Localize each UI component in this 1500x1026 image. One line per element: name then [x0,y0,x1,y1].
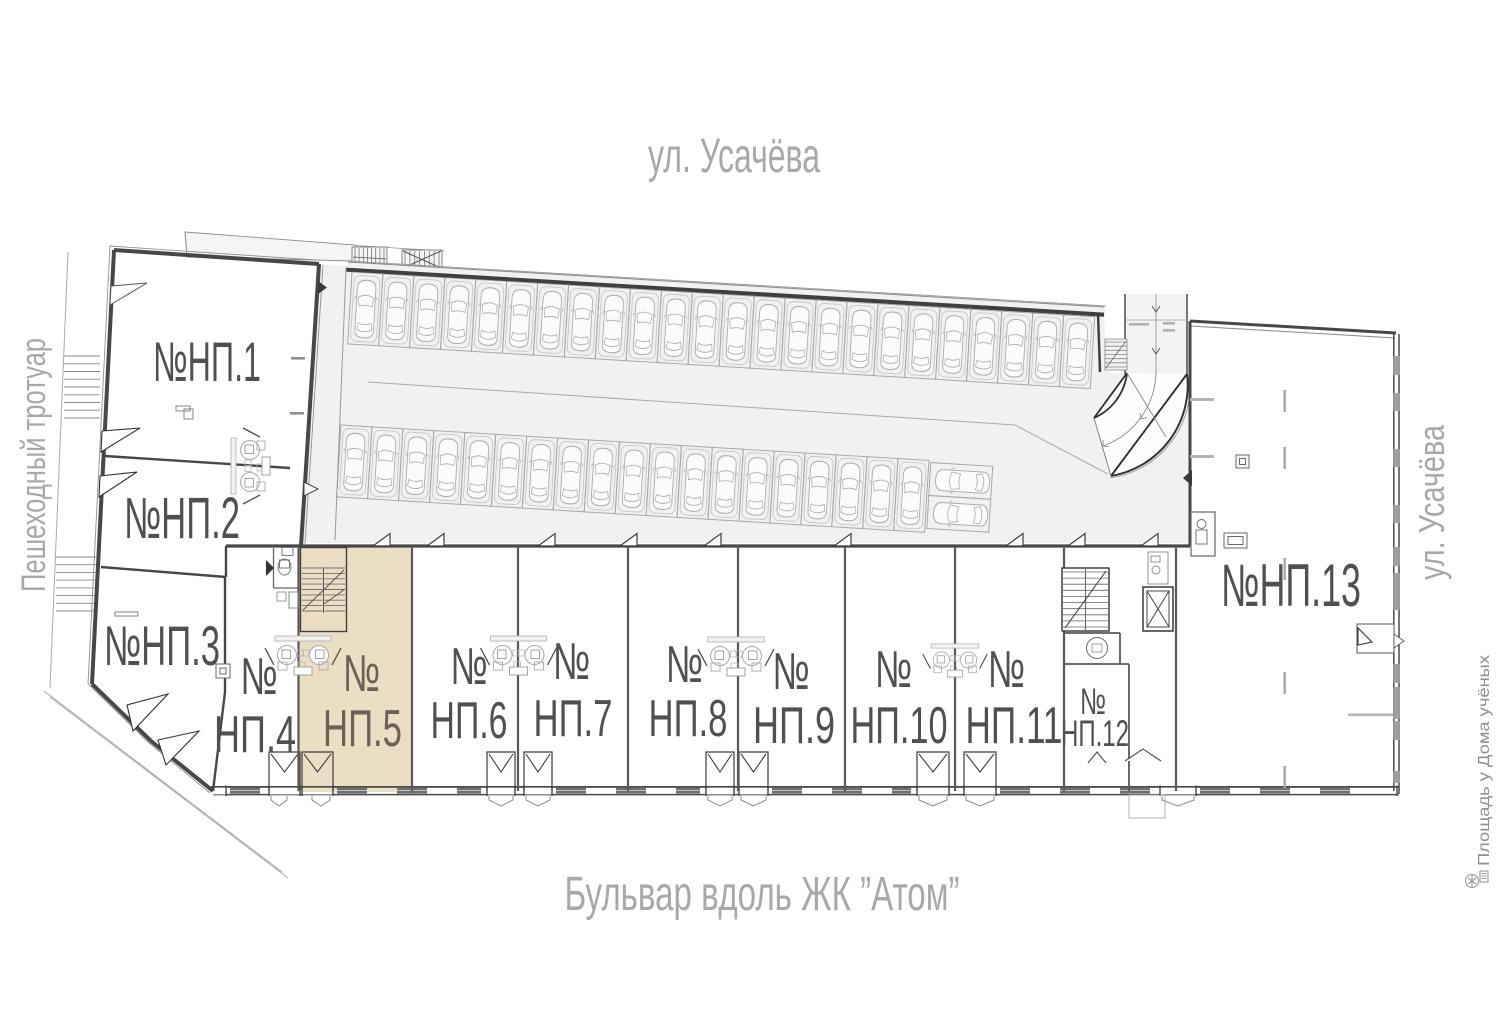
svg-text:ул. Усачёва: ул. Усачёва [648,130,820,183]
svg-text:НП.6: НП.6 [431,692,508,750]
svg-text:№НП.1: №НП.1 [153,330,261,393]
svg-text:№: № [241,648,278,706]
svg-text:№: № [553,633,590,691]
svg-text:№: № [451,638,488,696]
svg-text:НП.5: НП.5 [323,700,402,758]
svg-text:№: № [343,645,380,703]
svg-text:НП.12: НП.12 [1061,713,1129,754]
svg-text:№НП.3: №НП.3 [104,614,220,677]
svg-text:Бульвар вдоль ЖК ”Атом”: Бульвар вдоль ЖК ”Атом” [565,868,960,921]
svg-text:НП.8: НП.8 [649,690,728,748]
svg-text:НП.11: НП.11 [966,697,1063,755]
svg-text:НП.4: НП.4 [214,706,296,764]
svg-text:№: № [666,636,703,694]
svg-text:Площадь у Дома учёных: Площадь у Дома учёных [1476,655,1493,866]
svg-text:№НП.13: №НП.13 [1221,552,1361,619]
svg-text:ул. Усачёва: ул. Усачёва [1411,424,1452,580]
svg-text:НП.7: НП.7 [534,690,613,748]
svg-text:НП.9: НП.9 [753,697,835,755]
svg-text:№: № [875,641,912,699]
svg-text:№НП.2: №НП.2 [124,486,240,551]
svg-text:Пешеходный тротуар: Пешеходный тротуар [15,338,53,592]
svg-text:№: № [988,641,1025,699]
svg-text:№: № [773,643,810,701]
svg-text:НП.10: НП.10 [851,697,948,755]
